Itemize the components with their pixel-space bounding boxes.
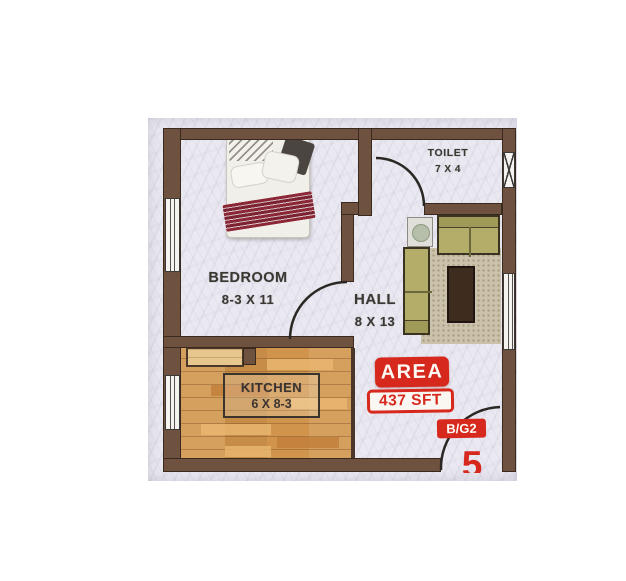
area-value-badge: 437 SFT	[367, 388, 454, 414]
block-unit-badge: B/G2	[437, 419, 486, 439]
area-badge: AREA	[375, 356, 450, 387]
bedroom-name: BEDROOM	[188, 268, 308, 290]
toilet-door-arc	[376, 158, 424, 206]
kitchen-label: KITCHEN 6 X 8-3	[223, 373, 320, 418]
hall-dims: 8 X 13	[341, 312, 409, 332]
kitchen-name: KITCHEN	[241, 380, 302, 395]
toilet-name: TOILET	[418, 145, 478, 162]
unit-number: 5	[452, 448, 492, 473]
plan-background: BEDROOM 8-3 X 11 HALL 8 X 13 TOILET 7 X …	[148, 118, 517, 481]
bedroom-label: BEDROOM 8-3 X 11	[188, 268, 308, 309]
hall-label: HALL 8 X 13	[341, 289, 409, 331]
toilet-dims: 7 X 4	[418, 162, 478, 178]
unit-number-clip: 5	[452, 448, 492, 473]
hall-name: HALL	[341, 289, 409, 312]
bedroom-dims: 8-3 X 11	[188, 290, 308, 310]
floor-plan: BEDROOM 8-3 X 11 HALL 8 X 13 TOILET 7 X …	[0, 0, 626, 581]
kitchen-dims: 6 X 8-3	[251, 397, 291, 411]
toilet-label: TOILET 7 X 4	[418, 145, 478, 178]
